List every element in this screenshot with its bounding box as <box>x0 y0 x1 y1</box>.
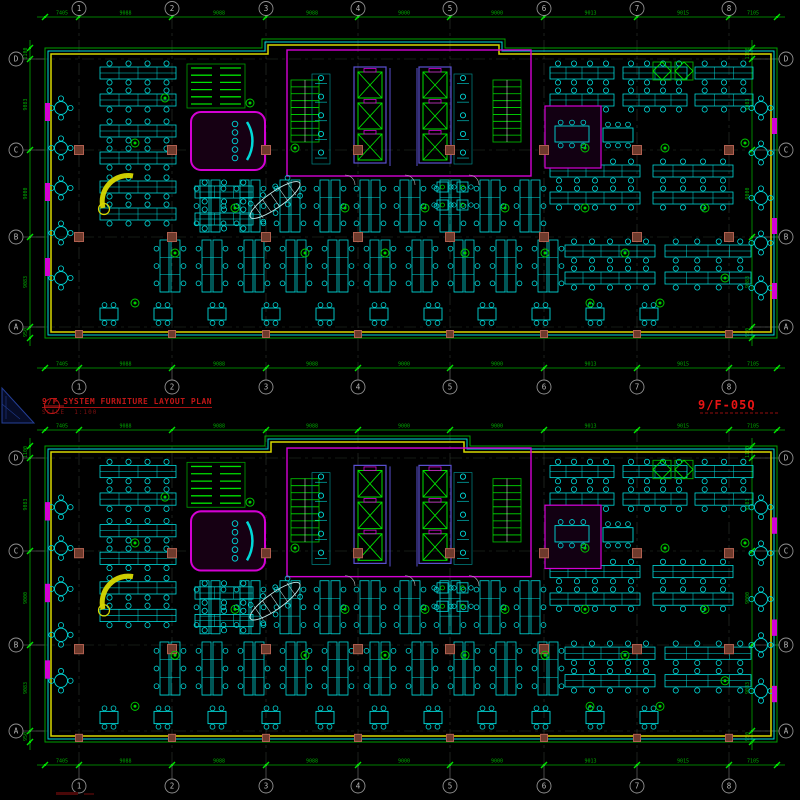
svg-text:2: 2 <box>170 781 175 790</box>
svg-text:A: A <box>14 726 19 735</box>
svg-text:9088: 9088 <box>306 424 318 430</box>
plan-scale: SCALE 1:100 <box>42 409 212 416</box>
detail-marker-icon <box>42 397 64 415</box>
bottom-dimension-row: 7405908890889088900090009013901571051234… <box>37 759 785 794</box>
svg-text:B: B <box>14 232 19 241</box>
svg-text:6: 6 <box>542 382 547 391</box>
svg-text:3: 3 <box>264 4 269 13</box>
lower-floor-plan: 7405908890889088900090009013901571057405… <box>9 424 793 794</box>
svg-text:9000: 9000 <box>398 759 410 765</box>
svg-text:9088: 9088 <box>119 362 131 368</box>
svg-text:9088: 9088 <box>119 424 131 430</box>
svg-text:3: 3 <box>264 781 269 790</box>
svg-text:9013: 9013 <box>584 759 596 765</box>
svg-text:9000: 9000 <box>398 362 410 368</box>
svg-text:7105: 7105 <box>747 11 759 17</box>
svg-text:7105: 7105 <box>747 759 759 765</box>
svg-text:9013: 9013 <box>584 11 596 17</box>
svg-text:7405: 7405 <box>56 424 68 430</box>
svg-text:9088: 9088 <box>306 759 318 765</box>
svg-text:2: 2 <box>170 382 175 391</box>
svg-text:9000: 9000 <box>23 592 29 604</box>
svg-text:9088: 9088 <box>213 362 225 368</box>
title-block: 9/F SYSTEM FURNITURE LAYOUT PLAN SCALE 1… <box>42 397 212 416</box>
cad-canvas: 7405908890889088900090009013901571051234… <box>0 0 800 800</box>
svg-text:9000: 9000 <box>491 11 503 17</box>
svg-text:B: B <box>14 640 19 649</box>
sheet-number-subtext <box>700 412 778 414</box>
svg-text:4: 4 <box>356 382 361 391</box>
svg-text:7105: 7105 <box>747 424 759 430</box>
svg-text:9088: 9088 <box>306 362 318 368</box>
svg-text:9088: 9088 <box>119 11 131 17</box>
svg-text:9000: 9000 <box>398 11 410 17</box>
svg-text:9083: 9083 <box>23 98 29 110</box>
svg-text:7405: 7405 <box>56 11 68 17</box>
svg-text:9088: 9088 <box>119 759 131 765</box>
svg-text:1: 1 <box>77 4 82 13</box>
svg-text:9000: 9000 <box>745 592 751 604</box>
svg-text:C: C <box>784 145 789 154</box>
svg-text:8: 8 <box>727 781 732 790</box>
svg-text:9083: 9083 <box>745 682 751 694</box>
svg-text:A: A <box>784 726 789 735</box>
svg-text:9015: 9015 <box>677 759 689 765</box>
svg-text:1: 1 <box>77 781 82 790</box>
svg-text:5: 5 <box>448 781 453 790</box>
svg-text:D: D <box>784 453 789 462</box>
svg-text:C: C <box>14 145 19 154</box>
svg-text:9000: 9000 <box>745 187 751 199</box>
svg-text:9083: 9083 <box>23 276 29 288</box>
svg-text:1100: 1100 <box>23 47 29 59</box>
svg-text:5: 5 <box>448 4 453 13</box>
svg-text:C: C <box>784 546 789 555</box>
svg-text:9088: 9088 <box>213 424 225 430</box>
svg-text:950: 950 <box>23 328 29 337</box>
svg-text:D: D <box>14 54 19 63</box>
svg-text:A: A <box>784 322 789 331</box>
svg-text:7105: 7105 <box>747 362 759 368</box>
svg-text:9083: 9083 <box>23 498 29 510</box>
svg-text:1100: 1100 <box>23 446 29 458</box>
svg-text:4: 4 <box>356 4 361 13</box>
svg-text:7: 7 <box>635 781 640 790</box>
svg-text:B: B <box>784 640 789 649</box>
svg-text:C: C <box>14 546 19 555</box>
upper-floor-plan: 7405908890889088900090009013901571051234… <box>9 2 793 395</box>
svg-text:9015: 9015 <box>677 424 689 430</box>
svg-text:1: 1 <box>77 382 82 391</box>
svg-text:9083: 9083 <box>23 682 29 694</box>
svg-text:9015: 9015 <box>677 362 689 368</box>
bottom-dimension-row: 7405908890889088900090009013901571051234… <box>37 362 785 395</box>
svg-text:9000: 9000 <box>491 424 503 430</box>
svg-text:B: B <box>784 232 789 241</box>
top-dimension-row: 7405908890889088900090009013901571051234… <box>37 2 785 21</box>
svg-text:8: 8 <box>727 382 732 391</box>
svg-text:9013: 9013 <box>584 424 596 430</box>
svg-text:7405: 7405 <box>56 759 68 765</box>
plan-title: 9/F SYSTEM FURNITURE LAYOUT PLAN <box>42 397 212 408</box>
svg-text:8: 8 <box>727 4 732 13</box>
svg-text:9088: 9088 <box>213 11 225 17</box>
svg-text:9088: 9088 <box>306 11 318 17</box>
svg-text:9015: 9015 <box>677 11 689 17</box>
svg-text:9000: 9000 <box>398 424 410 430</box>
svg-text:5: 5 <box>448 382 453 391</box>
svg-text:D: D <box>14 453 19 462</box>
svg-text:A: A <box>14 322 19 331</box>
furniture-layer <box>45 448 777 741</box>
sheet-number: 9/F-05Q <box>698 398 756 412</box>
svg-text:7: 7 <box>635 4 640 13</box>
furniture-layer <box>45 50 777 338</box>
svg-text:7: 7 <box>635 382 640 391</box>
svg-text:9000: 9000 <box>491 759 503 765</box>
svg-text:3: 3 <box>264 382 269 391</box>
svg-text:6: 6 <box>542 781 547 790</box>
svg-text:9000: 9000 <box>491 362 503 368</box>
svg-text:950: 950 <box>23 732 29 741</box>
svg-text:9088: 9088 <box>213 759 225 765</box>
svg-text:2: 2 <box>170 4 175 13</box>
top-dimension-row: 740590889088908890009000901390157105 <box>37 424 785 434</box>
svg-text:6: 6 <box>542 4 547 13</box>
svg-text:9000: 9000 <box>23 187 29 199</box>
svg-text:7405: 7405 <box>56 362 68 368</box>
svg-text:4: 4 <box>356 781 361 790</box>
svg-text:D: D <box>784 54 789 63</box>
svg-text:9013: 9013 <box>584 362 596 368</box>
